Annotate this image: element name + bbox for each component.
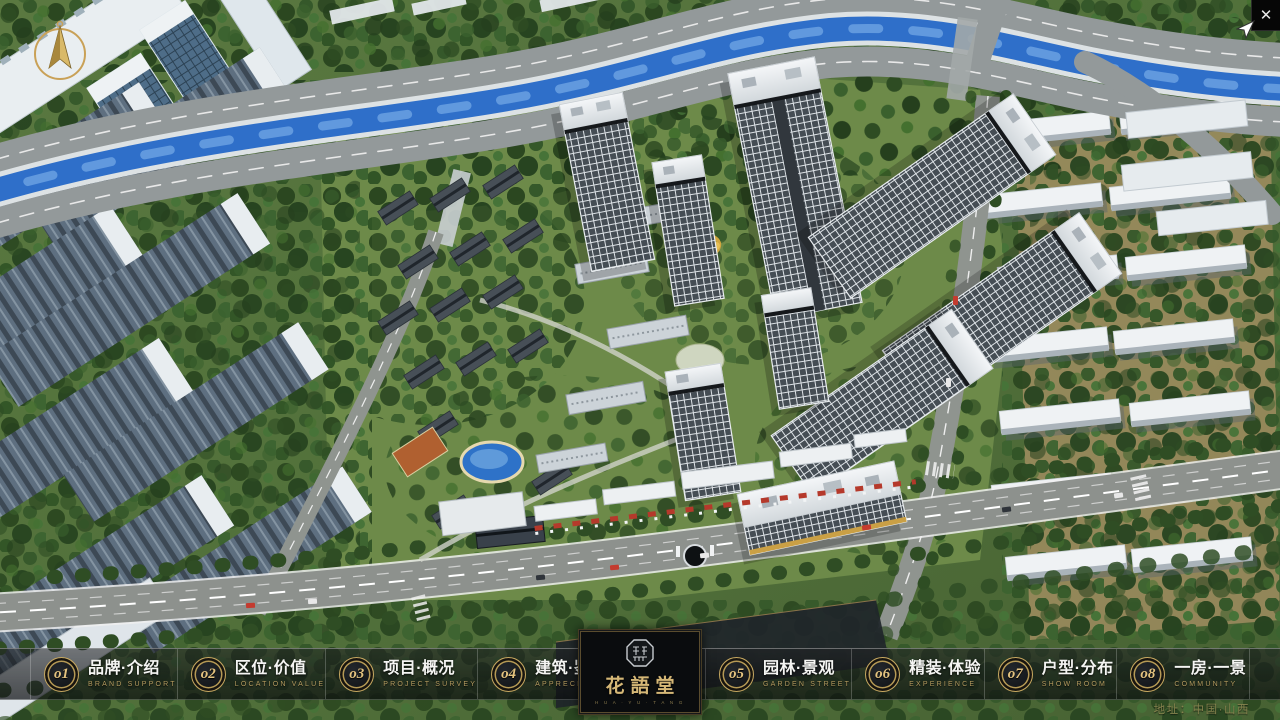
menu-item-interior-experience[interactable]: o6 精装·体验 EXPERIENCE <box>851 649 984 699</box>
menu-subtitle: PROJECT SURVEY <box>383 681 477 688</box>
menu-item-location-value[interactable]: o2 区位·价值 LOCATION VALUE <box>177 649 325 699</box>
menu-number-badge: o3 <box>339 657 374 692</box>
menu-number-badge: o2 <box>191 657 226 692</box>
menu-item-one-room-one-view[interactable]: o8 一房·一景 COMMUNITY <box>1116 649 1250 699</box>
menu-item-floorplan-distribution[interactable]: o7 户型·分布 SHOW ROOM <box>984 649 1117 699</box>
menu-subtitle: EXPERIENCE <box>909 681 981 688</box>
menu-item-brand-intro[interactable]: o1 品牌·介绍 BRAND SUPPORT <box>30 649 177 699</box>
menu-item-project-overview[interactable]: o3 项目·概况 PROJECT SURVEY <box>325 649 477 699</box>
project-logo-panel[interactable]: 花語堂 H U A · Y U · T A N G <box>578 629 702 715</box>
menu-title: 项目·概况 <box>383 661 477 677</box>
menu-number-badge: o8 <box>1130 657 1165 692</box>
menu-subtitle: COMMUNITY <box>1174 681 1246 688</box>
menu-title: 精装·体验 <box>909 661 981 677</box>
nav-group-right: o5 园林·景观 GARDEN STREET o6 精装·体验 EXPERIEN… <box>705 649 1250 699</box>
menu-number: o4 <box>501 666 516 683</box>
menu-number: o1 <box>54 666 69 683</box>
seal-icon <box>625 638 655 668</box>
project-map-view[interactable] <box>0 0 1280 720</box>
project-address: 地址：中国·山西 <box>1154 701 1250 717</box>
close-icon: ✕ <box>1260 6 1273 24</box>
menu-subtitle: LOCATION VALUE <box>235 681 325 688</box>
bottom-nav: o1 品牌·介绍 BRAND SUPPORT o2 区位·价值 LOCATION… <box>0 648 1280 700</box>
menu-title: 一房·一景 <box>1174 661 1246 677</box>
menu-number-badge: o1 <box>44 657 79 692</box>
close-button[interactable]: ✕ <box>1251 0 1280 31</box>
compass-icon <box>26 14 94 90</box>
menu-title: 品牌·介绍 <box>88 661 177 677</box>
menu-number-badge: o4 <box>491 657 526 692</box>
menu-subtitle: SHOW ROOM <box>1042 681 1114 688</box>
menu-number-badge: o5 <box>719 657 754 692</box>
project-name-caption: H U A · Y U · T A N G <box>595 701 685 706</box>
menu-number: o2 <box>201 666 216 683</box>
presentation-window: ✕ o1 品牌·介绍 BRAND SUPPORT o2 区位·价值 LOCATI… <box>0 0 1280 720</box>
menu-number: o3 <box>349 666 364 683</box>
menu-number: o5 <box>729 666 744 683</box>
menu-subtitle: GARDEN STREET <box>763 681 851 688</box>
menu-title: 区位·价值 <box>235 661 325 677</box>
nav-group-left: o1 品牌·介绍 BRAND SUPPORT o2 区位·价值 LOCATION… <box>30 649 575 699</box>
menu-number: o8 <box>1140 666 1155 683</box>
menu-title: 园林·景观 <box>763 661 851 677</box>
menu-subtitle: BRAND SUPPORT <box>88 681 177 688</box>
menu-number-badge: o7 <box>998 657 1033 692</box>
menu-title: 户型·分布 <box>1042 661 1114 677</box>
menu-item-garden-landscape[interactable]: o5 园林·景观 GARDEN STREET <box>705 649 851 699</box>
menu-number: o6 <box>875 666 890 683</box>
menu-number: o7 <box>1008 666 1023 683</box>
project-name: 花語堂 <box>599 671 680 698</box>
menu-number-badge: o6 <box>865 657 900 692</box>
